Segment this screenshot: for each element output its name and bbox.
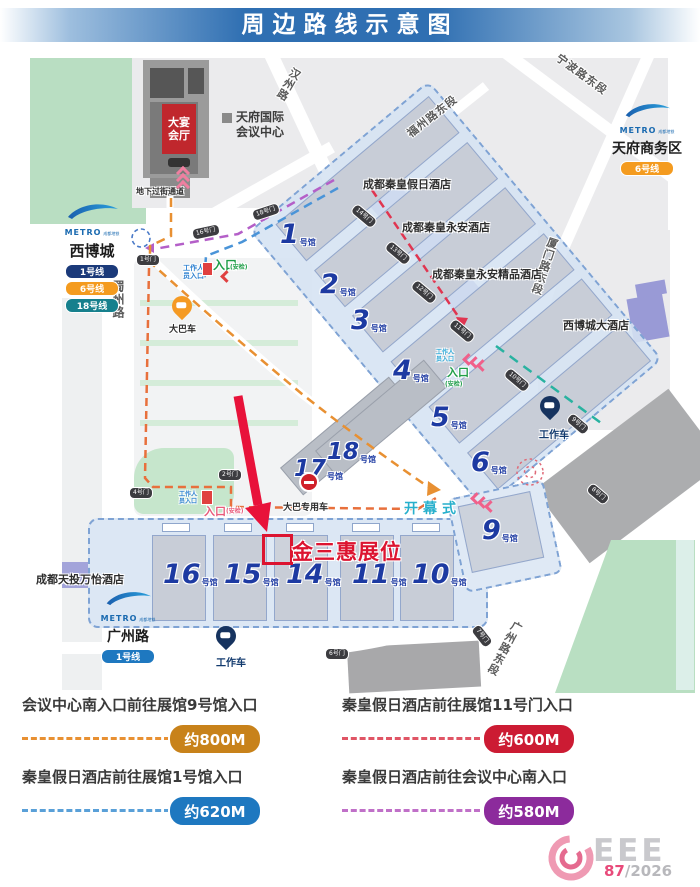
opening-ceremony-label: 开幕式: [404, 498, 461, 518]
hotel-label-xibocheng: 西博城大酒店: [563, 317, 629, 333]
station-name: 广州路: [107, 626, 149, 646]
hall-label-16: 16号馆: [163, 562, 218, 588]
legend-dash-red: [342, 737, 480, 740]
line-badge-6: 6号线: [620, 161, 674, 176]
legend-route-3: 秦皇假日酒店前往展馆1号馆入口: [22, 766, 242, 787]
route-map-page: 周边路线示意图 大宴 会厅: [0, 0, 700, 887]
building-marker-icon: [222, 113, 232, 123]
road-label-guangzhoulu-east: 广州路东段: [483, 618, 525, 678]
work-car-label: 工作车: [216, 654, 246, 669]
gate-badge-16: 16号门: [191, 223, 221, 240]
convention-center-label: 天府国际 会议中心: [222, 110, 284, 140]
convention-building-wing: [150, 68, 184, 98]
hall-label-6: 6号馆: [471, 450, 507, 476]
park-green-area: [30, 58, 146, 224]
security-check-label: (安检): [226, 506, 244, 515]
line-badge-1: 1号线: [101, 649, 155, 664]
title-bar: 周边路线示意图: [0, 8, 700, 42]
hall-label-1: 1号馆: [280, 222, 316, 248]
building-strip-south: [347, 641, 481, 694]
loading-dock: [352, 523, 380, 532]
gate-badge-6: 6号门: [325, 648, 349, 660]
car-glyph-icon: [220, 632, 230, 638]
legend-distance-4: 约580M: [482, 795, 576, 827]
legend-distance-3: 约620M: [168, 795, 262, 827]
loading-dock: [162, 523, 190, 532]
convention-label-line1: 天府国际: [236, 110, 284, 125]
grand-ballroom: 大宴 会厅: [162, 104, 196, 154]
bus-only-sign-icon: [299, 472, 319, 492]
line-badge-18: 18号线: [65, 298, 119, 313]
hall-label-15: 15号馆: [224, 562, 279, 588]
convention-building-wing: [188, 68, 204, 94]
legend-dash-orange: [22, 737, 170, 740]
building-badge: [168, 158, 190, 167]
security-check-label: (安检): [230, 262, 248, 271]
hedge-strip: [140, 340, 298, 346]
hall-label-5: 5号馆: [431, 405, 467, 431]
station-name: 天府商务区: [612, 138, 682, 158]
hall-label-10: 10号馆: [412, 562, 467, 588]
hall-label-9: 9号馆: [482, 518, 518, 544]
hotel-label-qinhuang-yongan: 成都秦皇永安酒店: [402, 219, 490, 235]
metro-logo-icon: [102, 590, 154, 606]
entrance-label: 入口: [204, 503, 226, 519]
metro-station-xibocheng: METRO成都地铁 西博城 1号线 6号线 18号线: [52, 202, 132, 314]
bus-glyph-icon: [176, 302, 186, 308]
page-title: 周边路线示意图: [0, 8, 700, 42]
staff-entrance-label: 工作人员入口: [436, 349, 454, 363]
entrance-label: 入口: [447, 364, 469, 380]
ceee-logo-c-icon: [544, 830, 596, 885]
legend-distance-1: 约800M: [168, 723, 262, 755]
metro-brand-row: METRO成都地铁: [620, 118, 675, 137]
hotel-label-qinhuang-holiday: 成都秦皇假日酒店: [363, 176, 451, 192]
ballroom-label-line1: 大宴: [168, 116, 190, 129]
staff-entrance-label: 工作人员入口: [179, 491, 197, 505]
ceee-logo-edition: 87/2026: [604, 862, 672, 880]
gate-badge-2: 2号门: [218, 469, 242, 481]
legend-route-1: 会议中心南入口前往展馆9号馆入口: [22, 694, 257, 715]
sign-bar-icon: [304, 481, 314, 484]
legend-distance-2: 约600M: [482, 723, 576, 755]
work-car-label: 工作车: [539, 426, 569, 441]
car-glyph-icon: [544, 402, 554, 408]
legend-route-2: 秦皇假日酒店前往展馆11号门入口: [342, 694, 573, 715]
hall-label-4: 4号馆: [393, 358, 429, 384]
legend-dash-purple: [342, 809, 480, 812]
booth-marker-square: [262, 534, 293, 565]
logo-number: 87: [604, 862, 625, 880]
hotel-label-qinhuang-yongan-boutique: 成都秦皇永安精品酒店: [432, 266, 542, 282]
hedge-strip: [140, 420, 298, 426]
convention-label-line2: 会议中心: [236, 125, 284, 140]
logo-year: /2026: [625, 862, 672, 880]
metro-brand-row: METRO成都地铁: [65, 220, 120, 239]
staff-entrance-label: 工作人员入口: [183, 264, 204, 280]
teal-strip-east: [676, 540, 694, 690]
loading-dock: [286, 523, 314, 532]
loading-dock: [412, 523, 440, 532]
station-name: 西博城: [69, 240, 114, 261]
ballroom-label-line2: 会厅: [168, 129, 190, 142]
metro-station-tianfu-cbd: METRO成都地铁 天府商务区 6号线: [602, 102, 692, 177]
security-check-label: (安检): [445, 379, 463, 388]
metro-logo-icon: [621, 102, 673, 118]
hedge-strip: [140, 380, 298, 386]
green-wedge-southeast: [555, 540, 695, 693]
legend-dash-blue: [22, 809, 170, 812]
metro-station-guangzhoulu: METRO成都地铁 广州路 1号线: [88, 590, 168, 665]
bus-label: 大巴车: [169, 322, 196, 335]
loading-dock: [224, 523, 252, 532]
hall-label-18: 18号馆: [327, 439, 376, 465]
metro-logo-icon: [64, 202, 120, 220]
line-badge-1: 1号线: [65, 264, 119, 279]
booth-label: 金三惠展位: [292, 536, 402, 566]
hotel-label-tiantou-wanyi: 成都天投万怡酒店: [36, 571, 124, 587]
gate-badge-1: 1号门: [136, 254, 160, 266]
bus-only-label: 大巴专用车: [283, 500, 328, 513]
hall-label-3: 3号馆: [351, 308, 387, 334]
hedge-strip: [140, 300, 298, 306]
line-badge-6: 6号线: [65, 281, 119, 296]
legend-route-4: 秦皇假日酒店前往会议中心南入口: [342, 766, 567, 787]
metro-brand-row: METRO成都地铁: [101, 606, 156, 625]
gate-badge-4: 4号门: [129, 487, 153, 499]
hall-label-2: 2号馆: [320, 272, 356, 298]
entrance-door-icon: [202, 262, 213, 276]
